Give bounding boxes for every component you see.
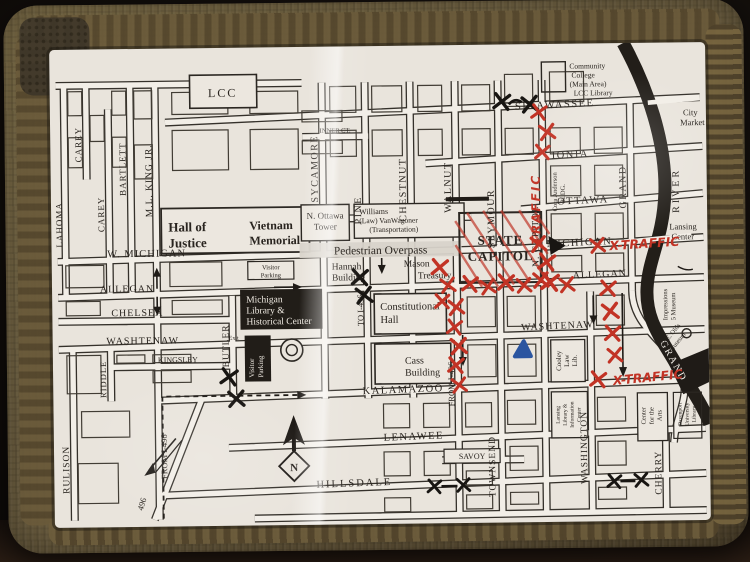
poi-cora-anderson-1: Cora Anderson (552, 171, 559, 211)
street-carey-1: CAREY (73, 127, 83, 163)
poi-lansing-library-4: Center (577, 407, 583, 422)
poi-davenport-3: Library (691, 406, 697, 423)
street-ml-king-jr: M.L. KING JR. (144, 144, 155, 217)
poi-lcc-college-2: College (571, 70, 595, 79)
street-lenawee: LENAWEE (383, 430, 444, 443)
poi-lcc-college-1: Community (569, 61, 605, 70)
poi-center-arts-2: for the (649, 407, 656, 424)
poi-n-ottawa-tower-1: N. Ottawa (307, 210, 344, 220)
poi-williams-3: (Transportation) (369, 225, 418, 235)
street-rulison: RULISON (62, 446, 73, 494)
red-traffic-note-capitol: TRAFFIC (529, 174, 544, 245)
poi-constitutional-1: Constitutional (380, 301, 440, 313)
street-washtenaw-west: WASHTENAW (106, 335, 179, 347)
poi-constitutional-2: Hall (380, 315, 398, 326)
street-kingsley: KINGSLEY (158, 355, 198, 364)
poi-impressions-1: Impressions (662, 288, 669, 320)
case-zipper-right (705, 24, 746, 524)
street-savoy: SAVOY (459, 452, 486, 461)
poi-lcc: LCC (208, 86, 238, 100)
poi-center-arts-3: Arts (657, 409, 664, 421)
poi-williams-1: Williams (359, 207, 388, 216)
poi-n-ottawa-tower-2: Tower (314, 222, 337, 232)
street-chestnut: CHESTNUT (397, 158, 409, 222)
street-ionia: IONIA (551, 149, 589, 162)
poi-mason-1: Mason (404, 259, 430, 269)
poi-hannah-1: Hannah (332, 262, 362, 272)
poi-michigan-library-2: Library & (246, 306, 285, 316)
poi-library-visitor-1: Visitor (248, 358, 256, 378)
poi-library-visitor-2: Parking (257, 355, 265, 377)
poi-visitor-parking-1: Visitor (262, 264, 281, 271)
street-lahoma: LAHOMA (54, 202, 65, 248)
street-inner-ct: INNER CT. (320, 127, 351, 134)
library-rotunda-outer (281, 339, 303, 361)
street-townsend: TOWNSEND (488, 436, 499, 497)
street-butler: BUTLER (221, 324, 232, 367)
poi-davenport-2: University (684, 402, 690, 426)
poi-state-capitol-1: STATE (478, 232, 524, 248)
poi-lcc-college-4: LCC Library (574, 88, 613, 97)
street-cherry: CHERRY (654, 451, 665, 495)
compass-north-label: N (290, 462, 298, 474)
lcc-college-hatched-block (541, 62, 565, 92)
photo-of-map-case: SHIAWASSEE INNER CT. IONIA OTTAWA W. MIC… (0, 0, 750, 562)
poi-vietnam-memorial-1: Vietnam (249, 218, 293, 233)
constitutional-hall-block (374, 293, 446, 334)
poi-vietnam-memorial-2: Memorial (249, 233, 300, 248)
street-carey-2: CAREY (96, 197, 106, 233)
poi-cooley-1: Cooley (555, 350, 563, 371)
poi-davenport-1: Davenport (677, 402, 683, 426)
poi-state-capitol-2: CAPITOL (468, 248, 534, 264)
poi-michigan-library-1: Michigan (246, 295, 283, 305)
plastic-map-window: SHIAWASSEE INNER CT. IONIA OTTAWA W. MIC… (49, 42, 711, 528)
street-grand-ave: GRAND (618, 165, 630, 208)
street-sycamore: SYCAMORE (309, 135, 321, 203)
poi-pedestrian-overpass: Pedestrian Overpass (334, 244, 428, 257)
poi-lcc-college-3: (Main Area) (570, 79, 607, 88)
street-walnut: WALNUT (442, 161, 454, 212)
poi-city-market-2: Market (680, 117, 705, 127)
street-riddle: RIDDLE (98, 361, 108, 398)
poi-lansing-library-1: Lansing (555, 406, 561, 424)
poi-lansing-library-2: Library & (562, 403, 568, 426)
poi-hall-of-justice-1: Hall of (168, 219, 207, 234)
poi-lansing-center-1: Lansing (669, 221, 697, 231)
poi-cora-anderson-2: BLDG. (560, 184, 567, 204)
street-bartlett: BARTLETT (117, 142, 128, 196)
poi-cass-2: Building (405, 367, 440, 378)
poi-hall-of-justice-2: Justice (168, 235, 207, 250)
poi-michigan-library-3: Historical Center (246, 317, 312, 328)
street-allegan-west: ALLEGAN (100, 284, 154, 296)
case-webbing-left (15, 35, 54, 525)
poi-cass-1: Cass (405, 355, 424, 366)
poi-cooley-3: Lib. (571, 355, 579, 367)
poi-cooley-2: Law (563, 354, 571, 367)
river-label: RIVER (671, 168, 683, 213)
poi-visitor-parking-2: Parking (261, 272, 282, 279)
poi-lansing-library-3: Information (568, 401, 575, 428)
poi-center-arts-1: Center (641, 406, 648, 424)
poi-impressions-2: 5 Museum (670, 293, 677, 321)
poi-city-market-1: City (683, 107, 699, 117)
poi-exit: Exit (229, 336, 239, 342)
street-map: SHIAWASSEE INNER CT. IONIA OTTAWA W. MIC… (49, 42, 711, 528)
